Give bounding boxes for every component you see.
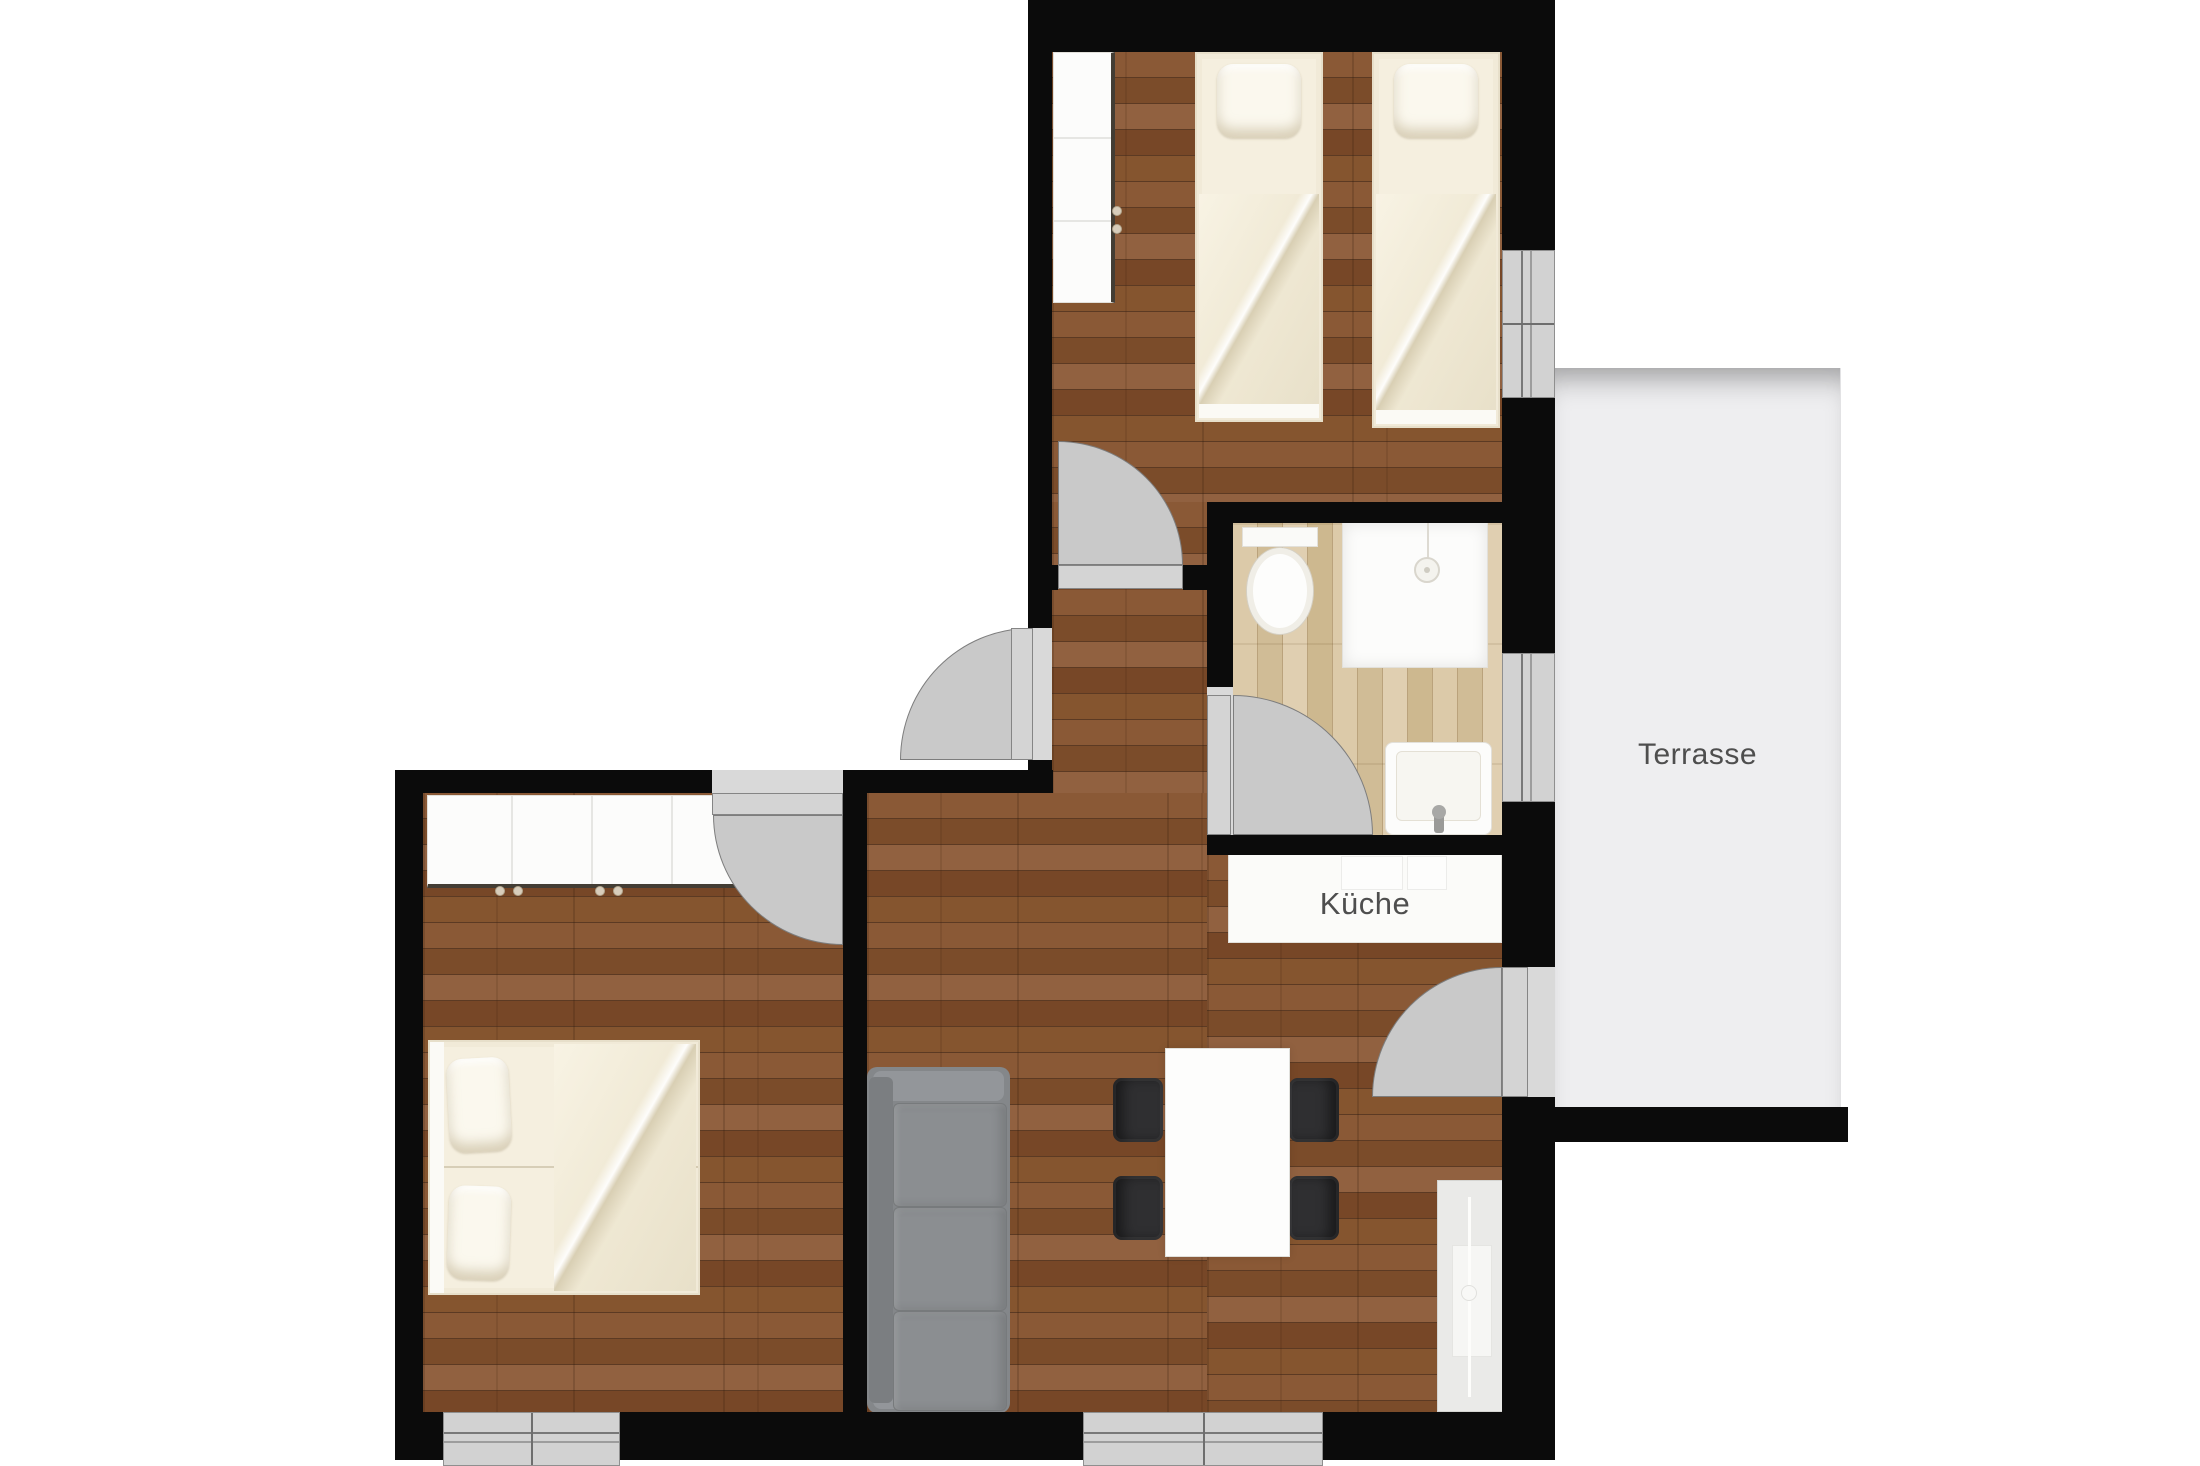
wardrobe-door-line	[511, 796, 513, 884]
wardrobe-knob	[495, 886, 505, 896]
kitchen-cabinet	[1341, 856, 1403, 890]
door-leaf-bedroom-top	[1058, 565, 1183, 589]
door-leaf-entry	[1011, 628, 1033, 760]
wall	[1183, 565, 1233, 590]
window-sill-line	[1530, 654, 1532, 801]
bed-footboard	[1199, 404, 1319, 418]
sofa-cushion	[893, 1103, 1007, 1207]
wardrobe-door-line	[591, 796, 593, 884]
wardrobe-shelf-line	[1054, 137, 1111, 139]
wardrobe-knob	[513, 886, 523, 896]
terrace-label: Terrasse	[1555, 738, 1840, 772]
bed-headboard	[430, 1042, 444, 1293]
sofa-cushion	[893, 1311, 1007, 1411]
pillow	[1217, 64, 1301, 138]
door-leaf-bathroom	[1207, 695, 1231, 835]
wall	[395, 770, 423, 1460]
wardrobe-door-line	[671, 796, 673, 884]
window-bedroom-left	[443, 1412, 620, 1466]
window-bathroom	[1502, 653, 1555, 802]
kitchen-cabinet	[1407, 856, 1447, 890]
sideboard-top	[1452, 1245, 1492, 1357]
wall	[395, 770, 712, 793]
double-bed	[428, 1040, 700, 1295]
window-mullion	[1503, 323, 1554, 325]
sink	[1385, 742, 1492, 835]
wardrobe-shelf-line	[1054, 220, 1111, 222]
window-mullion	[1203, 1413, 1205, 1465]
kitchen-label: Küche	[1228, 886, 1502, 922]
wall	[1207, 502, 1233, 687]
door-leaf-terrace	[1502, 967, 1528, 1097]
floor-hallway	[1052, 590, 1207, 793]
pillow	[446, 1185, 511, 1281]
shower-drain	[1424, 567, 1430, 573]
dining-chair	[1113, 1078, 1163, 1142]
wardrobe-knob	[595, 886, 605, 896]
toilet-cistern	[1242, 527, 1318, 547]
duvet	[554, 1044, 696, 1291]
shower-hose	[1427, 523, 1429, 559]
shower	[1342, 522, 1488, 668]
wall	[1028, 0, 1052, 628]
wardrobe-knob	[1112, 224, 1122, 234]
wardrobe-top-bedroom	[1053, 52, 1115, 303]
wall	[1207, 835, 1502, 855]
duvet	[1199, 194, 1319, 406]
wall	[1028, 0, 1555, 52]
toilet-bowl	[1246, 547, 1314, 635]
sofa	[867, 1067, 1010, 1413]
window-bedroom-top	[1502, 250, 1555, 398]
pillow	[1394, 64, 1478, 138]
wall-terrace	[1502, 1107, 1848, 1142]
window-sill-line	[1521, 654, 1523, 801]
duvet	[1376, 194, 1496, 412]
sofa-backrest	[869, 1077, 893, 1403]
floor-plan: Küche	[0, 0, 2200, 1466]
wall	[1207, 502, 1502, 523]
door-leaf-bedroom-left	[712, 793, 843, 815]
dining-chair	[1113, 1176, 1163, 1240]
bed-footboard	[1376, 410, 1496, 424]
faucet-base	[1432, 805, 1446, 819]
door-threshold-bedroom-left	[712, 770, 843, 793]
sofa-cushion	[893, 1207, 1007, 1311]
wall	[843, 770, 867, 1460]
wardrobe-knob	[1112, 206, 1122, 216]
wardrobe-knob	[613, 886, 623, 896]
dining-chair	[1289, 1176, 1339, 1240]
single-bed-1	[1195, 52, 1323, 422]
tv-stand	[1461, 1285, 1477, 1301]
tv-sideboard	[1437, 1180, 1503, 1412]
window-living	[1083, 1412, 1323, 1466]
dining-table	[1165, 1048, 1290, 1257]
wardrobe-left-bedroom	[427, 795, 750, 888]
pillow	[446, 1056, 513, 1153]
single-bed-2	[1372, 52, 1500, 428]
window-mullion	[531, 1413, 533, 1465]
dining-chair	[1289, 1078, 1339, 1142]
wall	[843, 770, 1053, 793]
